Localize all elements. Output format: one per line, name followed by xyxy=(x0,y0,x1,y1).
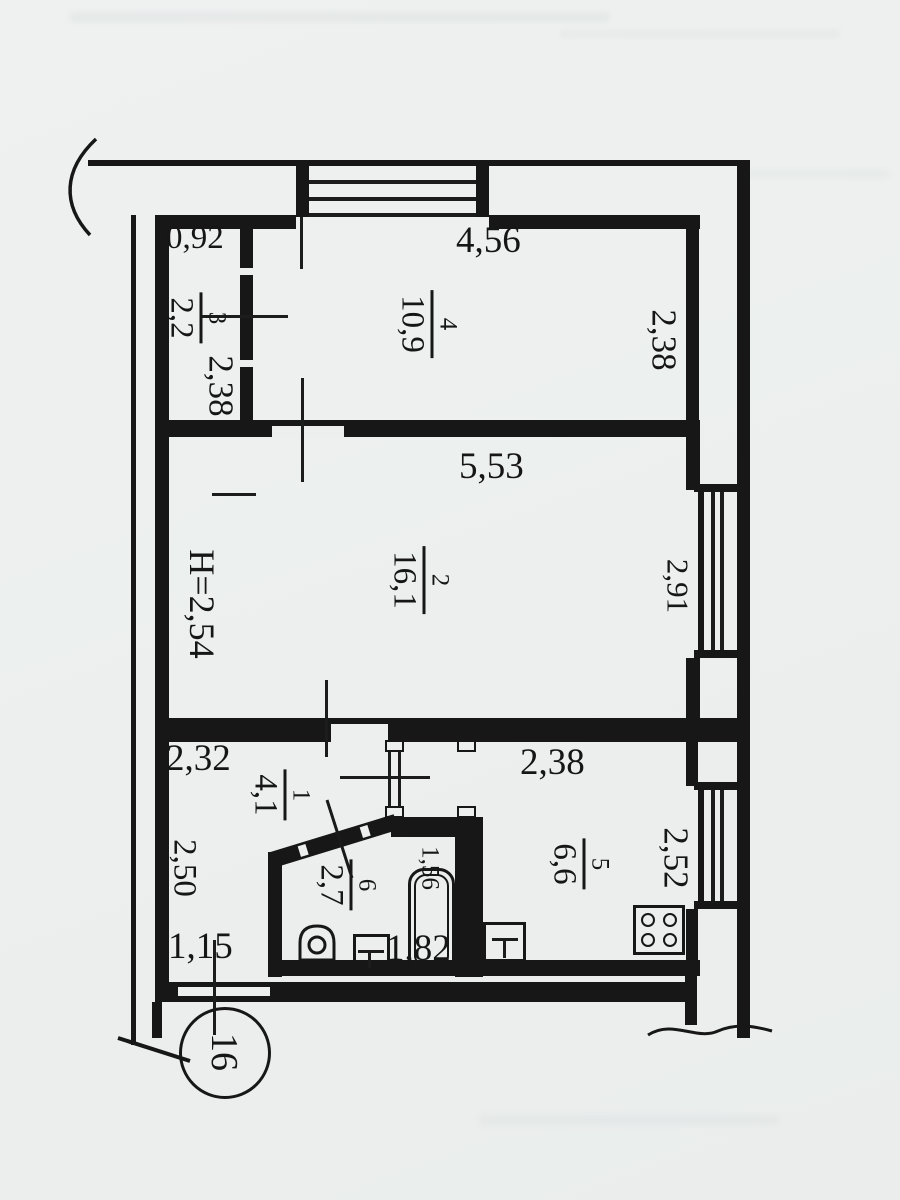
sink-icon xyxy=(368,950,371,968)
stove-icon xyxy=(641,933,655,947)
toilet-icon xyxy=(309,937,325,953)
room-label-3: 3 2,2 xyxy=(165,292,230,343)
dim-kitchen-width: 2,38 xyxy=(520,744,585,781)
room-area: 2,2 xyxy=(165,292,203,343)
stove-icon xyxy=(663,913,677,927)
room-number: 2 xyxy=(426,572,453,589)
room-label-6: 6 2,7 xyxy=(315,859,380,910)
stove-icon xyxy=(641,913,655,927)
room-label-1: 1 4,1 xyxy=(249,769,314,820)
dim-room2-width: 5,53 xyxy=(459,448,524,485)
room-number: 4 xyxy=(434,316,461,333)
room-number: 6 xyxy=(353,877,380,894)
dim-entry-width: 1,15 xyxy=(168,928,233,965)
room-area: 16,1 xyxy=(388,546,426,614)
room-number: 1 xyxy=(287,787,314,804)
dim-room4-depth: 2,38 xyxy=(647,309,682,370)
toilet-icon xyxy=(300,926,334,969)
dim-kitchen-window: 2,52 xyxy=(659,827,694,888)
dim-hall-depth: 2,50 xyxy=(168,839,201,897)
room-label-5: 5 6,6 xyxy=(548,838,613,889)
door-jamb-gap xyxy=(299,849,307,851)
floor-plan-canvas: 16 0,92 4,56 5,53 2,32 2,38 1,15 1,82 2,… xyxy=(0,0,900,1200)
stove-icon xyxy=(663,933,677,947)
room-label-4: 4 10,9 xyxy=(396,290,461,358)
ceiling-height-label: H=2,54 xyxy=(184,549,220,658)
dim-room3-width: 0,92 xyxy=(166,222,224,255)
room-area: 6,6 xyxy=(548,838,586,889)
dim-room3-depth: 2,38 xyxy=(204,355,239,416)
room-area: 2,7 xyxy=(315,859,353,910)
sink-icon xyxy=(358,950,384,953)
room-area: 4,1 xyxy=(249,769,287,820)
room-number: 3 xyxy=(203,310,230,327)
door-jamb-gap xyxy=(361,830,369,832)
room-number: 5 xyxy=(586,856,613,873)
dim-room2-window: 2,91 xyxy=(663,559,694,613)
room-area: 10,9 xyxy=(396,290,434,358)
dim-bathtub-length: 1,56 xyxy=(418,846,443,890)
dim-room4-width: 4,56 xyxy=(456,222,521,259)
wall-break-mark-right xyxy=(648,1026,772,1035)
wall-break-mark-top xyxy=(70,139,96,235)
room-label-2: 2 16,1 xyxy=(388,546,453,614)
wall-bathroom-diagonal xyxy=(272,822,396,860)
dim-bathroom-length: 1,82 xyxy=(386,930,451,967)
dim-hall-width: 2,32 xyxy=(166,740,231,777)
stove-icon xyxy=(633,905,685,955)
floor-number: 16 xyxy=(205,1033,243,1071)
kitchen-sink-icon xyxy=(503,938,506,958)
